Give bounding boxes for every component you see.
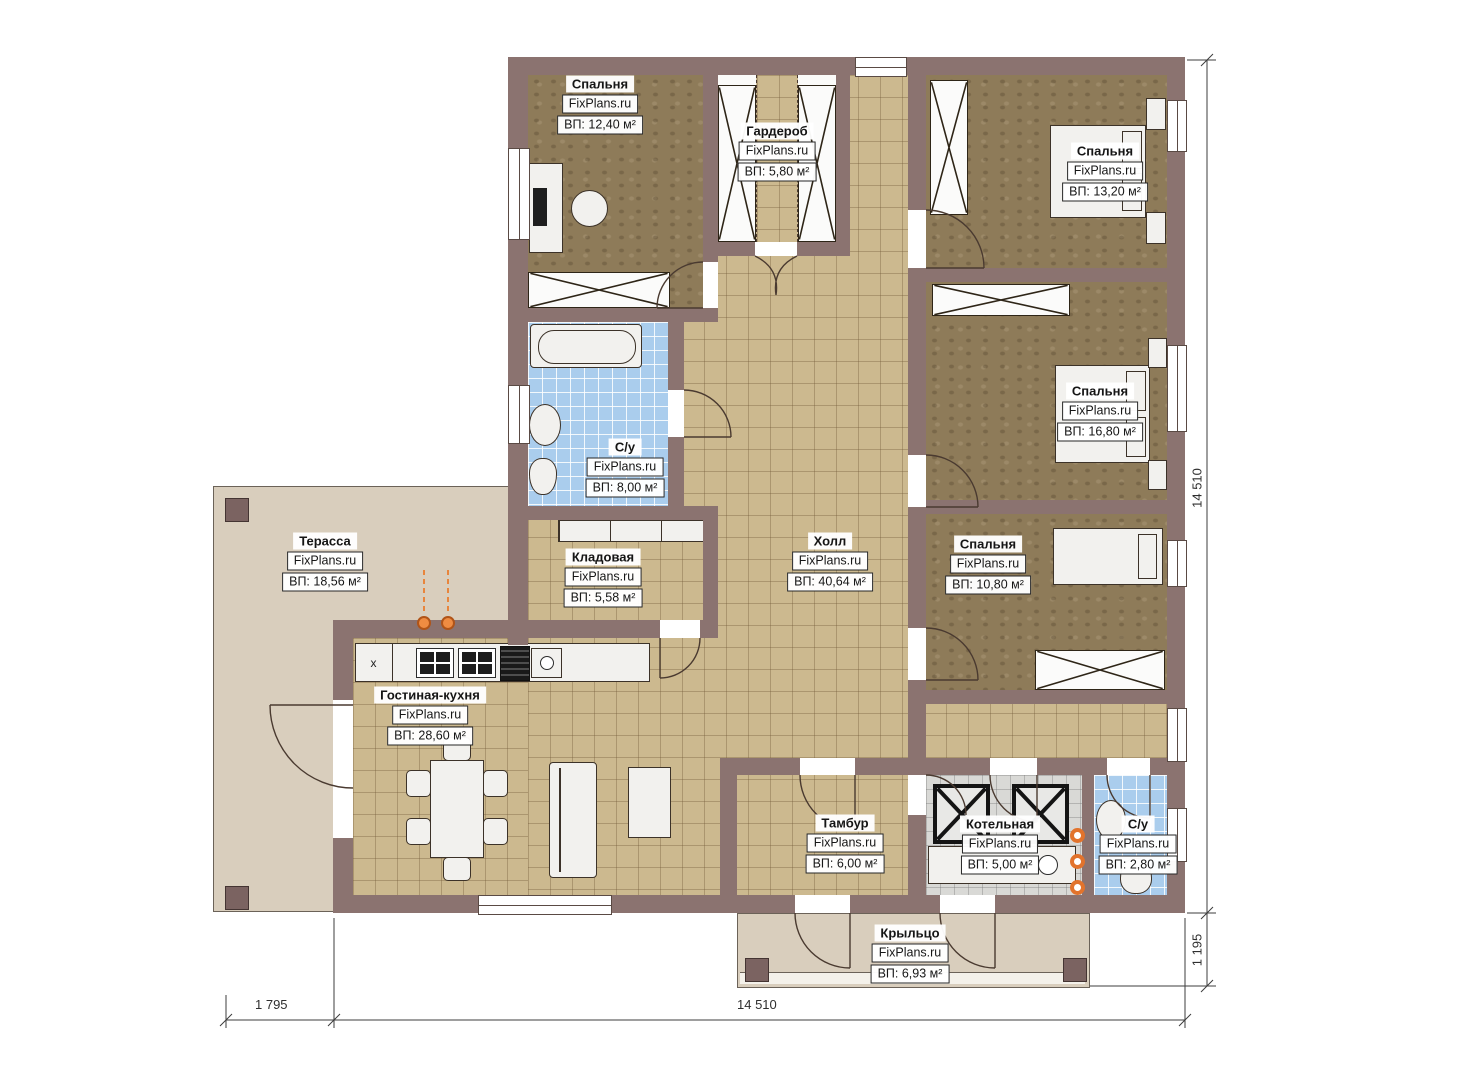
room-label-bedroom-tl: Спальня FixPlans.ru ВП: 12,40 м² (557, 76, 643, 135)
room-name: Гардероб (740, 123, 813, 140)
room-area: ВП: 2,80 м² (1099, 856, 1178, 875)
column-post (225, 498, 249, 522)
room-area: ВП: 6,93 м² (871, 965, 950, 984)
room-label-vestibule: Тамбур FixPlans.ru ВП: 6,00 м² (806, 815, 885, 874)
watermark: FixPlans.ru (1067, 162, 1144, 181)
room-name: С/у (609, 439, 641, 456)
watermark: FixPlans.ru (950, 555, 1027, 574)
room-area: ВП: 13,20 м² (1062, 183, 1148, 202)
watermark: FixPlans.ru (1100, 835, 1177, 854)
room-area: ВП: 5,00 м² (961, 856, 1040, 875)
room-name: Спальня (954, 536, 1022, 553)
room-area: ВП: 10,80 м² (945, 576, 1031, 595)
room-area: ВП: 40,64 м² (787, 573, 873, 592)
column-post (1063, 958, 1087, 982)
column-post (225, 886, 249, 910)
watermark: FixPlans.ru (562, 95, 639, 114)
watermark: FixPlans.ru (1062, 402, 1139, 421)
column-post (745, 958, 769, 982)
room-name: Котельная (960, 816, 1040, 833)
room-name: Терасса (293, 533, 357, 550)
room-area: ВП: 6,00 м² (806, 855, 885, 874)
room-area: ВП: 5,58 м² (564, 589, 643, 608)
dimension-height-total: 14 510 (1190, 468, 1205, 508)
watermark: FixPlans.ru (392, 706, 469, 725)
room-area: ВП: 12,40 м² (557, 116, 643, 135)
room-label-living-kitchen: Гостиная-кухня FixPlans.ru ВП: 28,60 м² (374, 687, 486, 746)
plan-linework (0, 0, 1473, 1080)
dimension-width-total: 14 510 (737, 997, 777, 1012)
room-name: Спальня (1071, 143, 1139, 160)
room-label-wardrobe: Гардероб FixPlans.ru ВП: 5,80 м² (738, 123, 817, 182)
room-name: Крыльцо (874, 925, 945, 942)
room-name: Тамбур (815, 815, 874, 832)
watermark: FixPlans.ru (587, 458, 664, 477)
room-label-bathroom-small: С/у FixPlans.ru ВП: 2,80 м² (1099, 816, 1178, 875)
dimension-porch-offset: 1 195 (1190, 934, 1205, 967)
dimension-terrace-offset: 1 795 (255, 997, 288, 1012)
room-area: ВП: 16,80 м² (1057, 423, 1143, 442)
room-area: ВП: 18,56 м² (282, 573, 368, 592)
room-label-terrace: Терасса FixPlans.ru ВП: 18,56 м² (282, 533, 368, 592)
room-label-boiler: Котельная FixPlans.ru ВП: 5,00 м² (960, 816, 1040, 875)
watermark: FixPlans.ru (962, 835, 1039, 854)
room-label-bedroom-br: Спальня FixPlans.ru ВП: 10,80 м² (945, 536, 1031, 595)
watermark: FixPlans.ru (872, 944, 949, 963)
watermark: FixPlans.ru (565, 568, 642, 587)
room-label-bedroom-tr: Спальня FixPlans.ru ВП: 13,20 м² (1062, 143, 1148, 202)
room-label-bathroom-main: С/у FixPlans.ru ВП: 8,00 м² (586, 439, 665, 498)
watermark: FixPlans.ru (792, 552, 869, 571)
room-area: ВП: 28,60 м² (387, 727, 473, 746)
room-name: Гостиная-кухня (374, 687, 486, 704)
room-name: Кладовая (566, 549, 640, 566)
room-label-bedroom-mr: Спальня FixPlans.ru ВП: 16,80 м² (1057, 383, 1143, 442)
room-area: ВП: 8,00 м² (586, 479, 665, 498)
room-name: С/у (1122, 816, 1154, 833)
room-label-porch: Крыльцо FixPlans.ru ВП: 6,93 м² (871, 925, 950, 984)
room-name: Холл (808, 533, 853, 550)
room-label-storeroom: Кладовая FixPlans.ru ВП: 5,58 м² (564, 549, 643, 608)
room-name: Спальня (1066, 383, 1134, 400)
watermark: FixPlans.ru (739, 142, 816, 161)
watermark: FixPlans.ru (287, 552, 364, 571)
room-name: Спальня (566, 76, 634, 93)
room-area: ВП: 5,80 м² (738, 163, 817, 182)
floor-plan: x (0, 0, 1473, 1080)
room-label-hall: Холл FixPlans.ru ВП: 40,64 м² (787, 533, 873, 592)
watermark: FixPlans.ru (807, 834, 884, 853)
